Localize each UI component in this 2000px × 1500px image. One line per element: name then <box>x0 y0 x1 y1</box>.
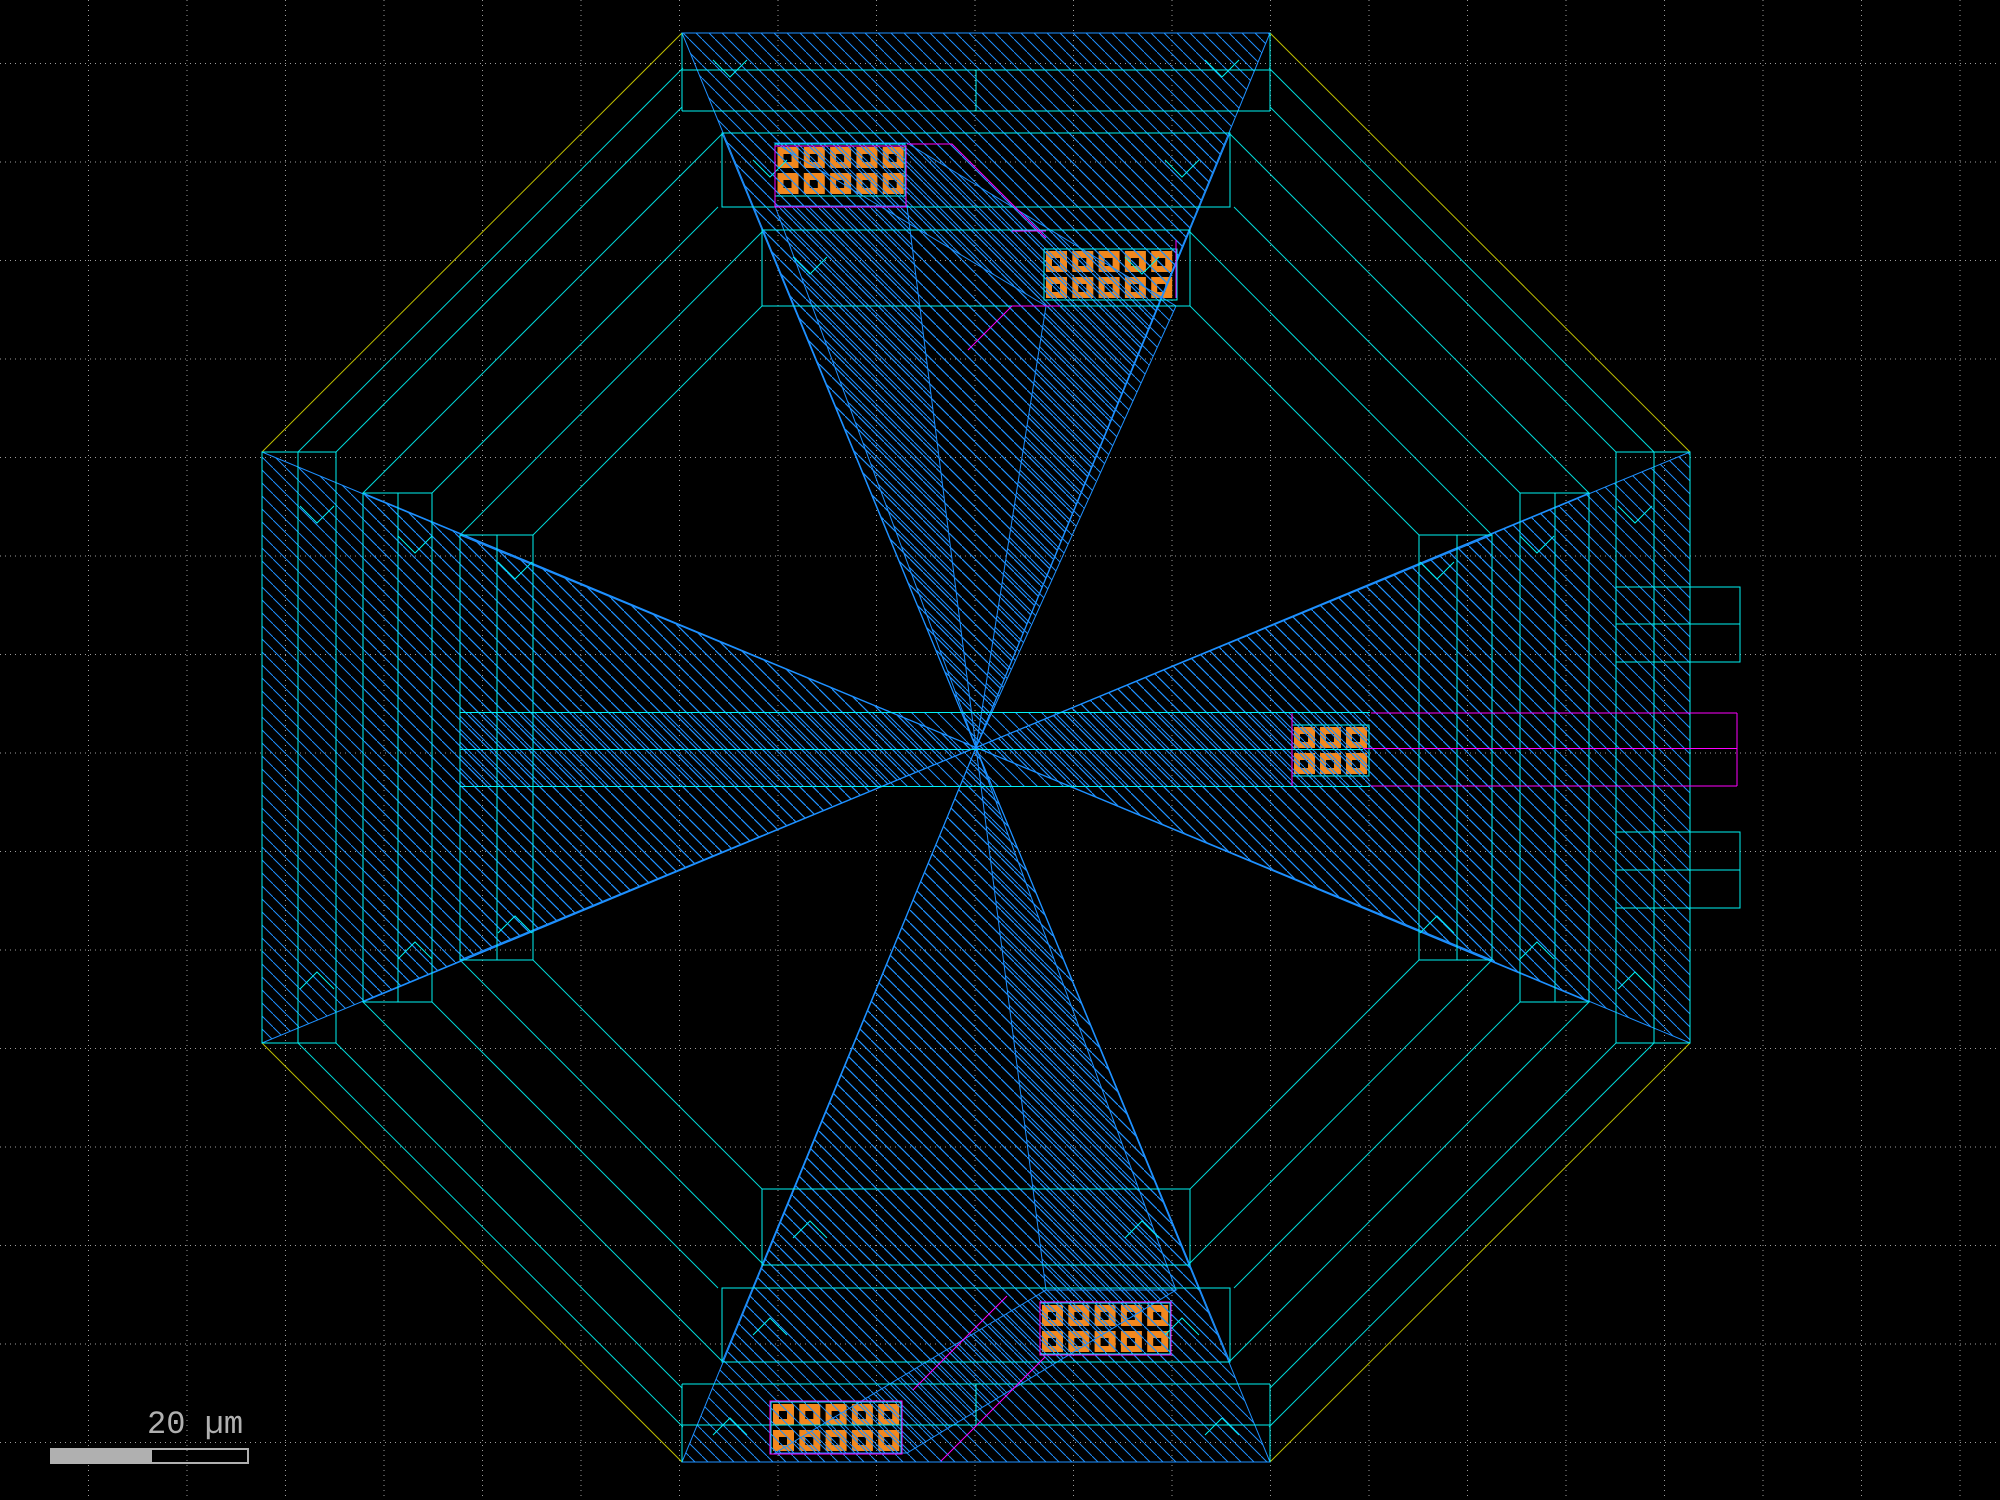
svg-text:20 µm: 20 µm <box>147 1406 243 1443</box>
